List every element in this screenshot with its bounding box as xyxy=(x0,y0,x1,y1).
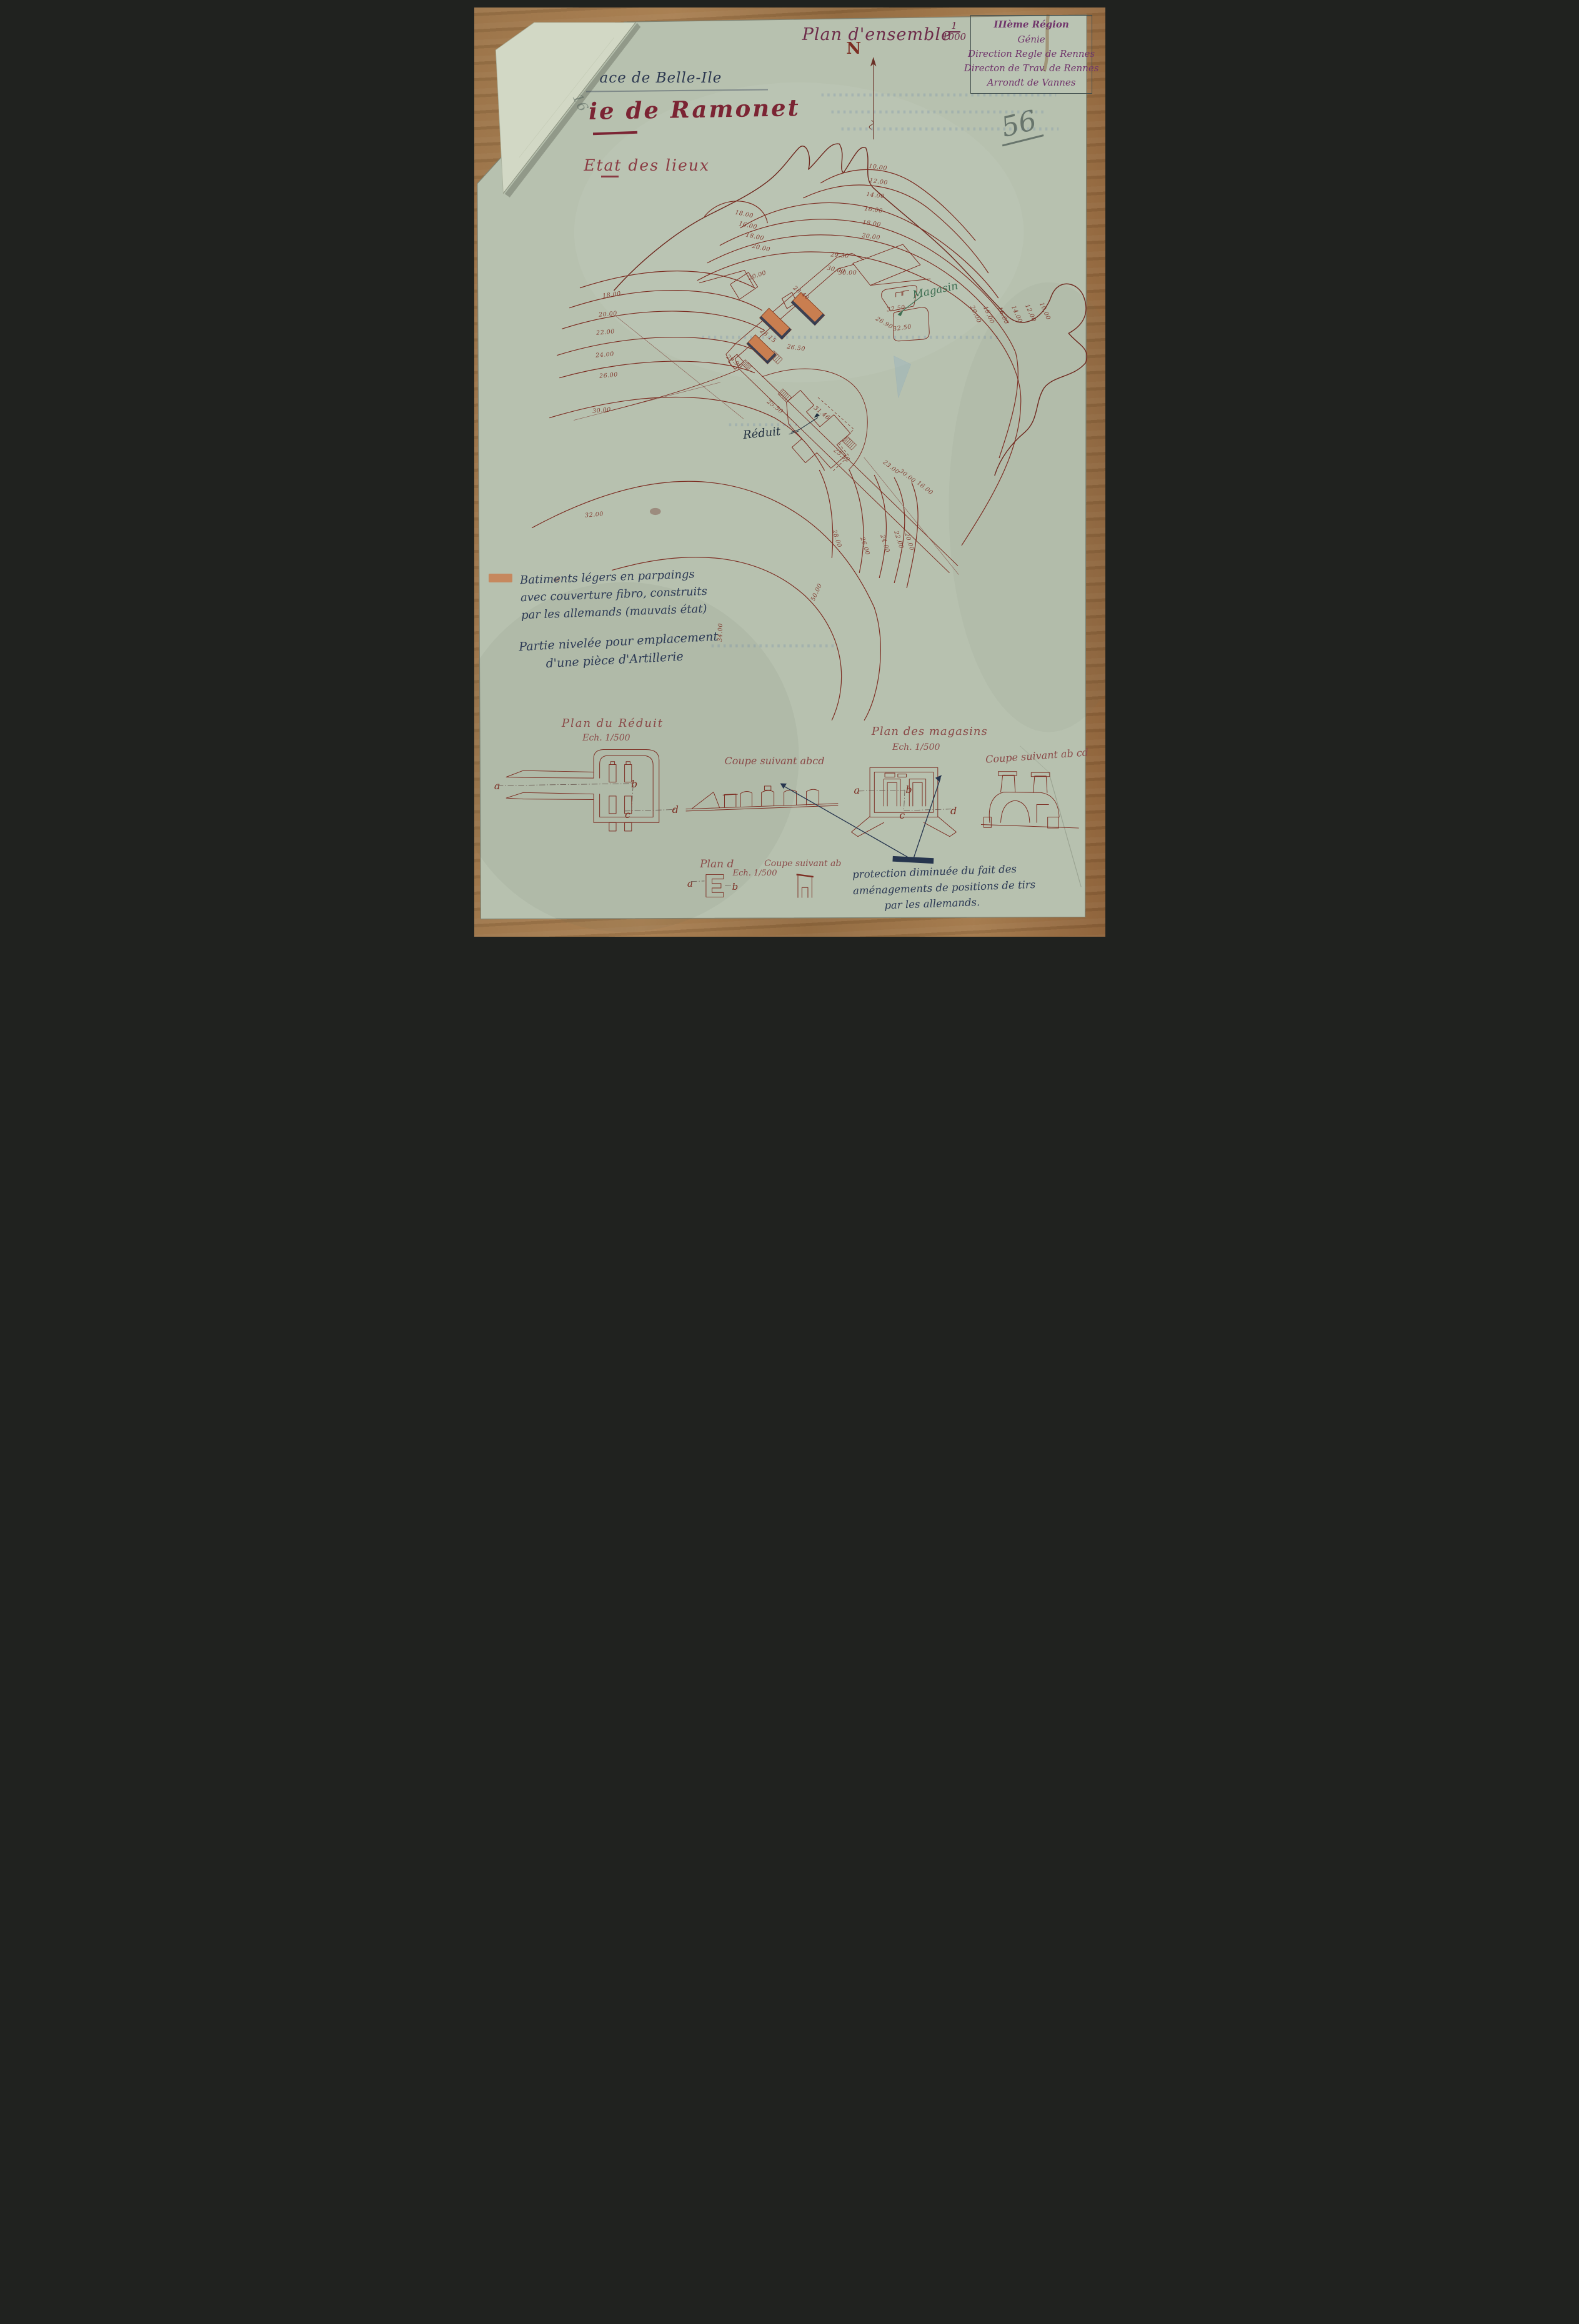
figure-title-plan-d: Plan d xyxy=(700,858,734,870)
elevation-label: 25.50 xyxy=(765,398,784,415)
elevation-label: 25.52 xyxy=(832,447,851,464)
marker-reduit-b: b xyxy=(631,778,637,790)
elevation-label: 26.90 xyxy=(874,315,894,330)
elevation-label: 26.00 xyxy=(859,536,871,556)
marker-plan-d-b: b xyxy=(732,881,739,892)
elevation-label: 29.30 xyxy=(830,251,850,260)
elevation-label: 31.46 xyxy=(812,404,831,421)
elevation-label: 30.00 xyxy=(898,468,917,485)
elevation-label: 28.40 xyxy=(792,285,810,302)
elevation-label: 14.00 xyxy=(1010,304,1024,324)
elevation-label: 10.00 xyxy=(869,162,888,172)
elevation-label: 16.00 xyxy=(996,306,1010,326)
elevation-label: 20.00 xyxy=(903,532,915,552)
figure-scale-reduit: Ech. 1/500 xyxy=(582,733,630,743)
note-buildings: Batiments légers en parpaings avec couve… xyxy=(520,566,709,624)
elevation-label: 30.00 xyxy=(592,406,612,415)
elevation-label: 32.50 xyxy=(886,304,905,313)
elevation-label: 29.90 xyxy=(725,353,744,370)
elevation-labels-layer: 10.0012.0014.0016.0018.0020.0029.3030.00… xyxy=(474,7,1105,937)
elevation-label: 10.00 xyxy=(1038,301,1052,321)
elevation-label: 26.00 xyxy=(599,371,619,380)
elevation-label: 32.50 xyxy=(892,324,912,333)
marker-reduit-a: a xyxy=(494,780,501,792)
marker-magasins-b: b xyxy=(905,784,912,795)
figure-scale-plan-d: Ech. 1/500 xyxy=(733,869,777,878)
elevation-label: 20.00 xyxy=(599,310,618,319)
elevation-label: 28.00 xyxy=(830,529,843,549)
elevation-label: 32.00 xyxy=(585,511,604,519)
elevation-label: 12.00 xyxy=(1024,303,1037,323)
elevation-label: 24.00 xyxy=(595,351,615,359)
marker-reduit-c: c xyxy=(625,809,630,820)
elevation-label: 24.00 xyxy=(879,534,891,554)
elevation-label: 16.00 xyxy=(864,205,884,214)
elevation-label: 16.00 xyxy=(738,221,757,231)
marker-magasins-a: a xyxy=(854,784,860,796)
elevation-label: 26.15 xyxy=(759,327,777,344)
figure-title-reduit: Plan du Réduit xyxy=(562,717,664,730)
elevation-label: 20.00 xyxy=(969,304,982,324)
note-protection: protection diminuée du fait des aménagem… xyxy=(852,860,1036,914)
figure-title-magasins: Plan des magasins xyxy=(872,725,988,738)
elevation-label: 20.00 xyxy=(747,269,767,282)
elevation-label: 18.00 xyxy=(982,305,995,325)
figure-title-coupe-ab: Coupe suivant ab xyxy=(764,859,841,869)
elevation-label: 18.00 xyxy=(602,290,622,299)
elevation-label: 30.00 xyxy=(826,264,845,275)
legend-building-swatch xyxy=(489,574,512,583)
elevation-label: 20.00 xyxy=(862,232,881,241)
marker-plan-d-a: a xyxy=(687,878,693,889)
figure-scale-magasins: Ech. 1/500 xyxy=(892,742,940,752)
elevation-label: 18.00 xyxy=(735,209,754,220)
marker-reduit-d: d xyxy=(672,804,679,815)
elevation-label: 18.00 xyxy=(862,219,881,229)
elevation-label: 26.50 xyxy=(787,343,806,352)
marker-magasins-d: d xyxy=(950,805,957,817)
marker-magasins-c: c xyxy=(899,809,905,821)
elevation-label: 12.00 xyxy=(869,177,889,186)
elevation-label: 22.00 xyxy=(596,328,615,337)
scanned-plan-document: IIIème Région Génie Direction Regle de R… xyxy=(474,7,1105,937)
elevation-label: 16.00 xyxy=(915,479,934,496)
elevation-label: 50.00 xyxy=(810,583,824,603)
elevation-label: 20.00 xyxy=(751,243,770,254)
elevation-label: 18.00 xyxy=(745,232,764,242)
figure-title-coupe-abcd: Coupe suivant abcd xyxy=(724,755,824,767)
elevation-label: 14.00 xyxy=(865,191,885,200)
